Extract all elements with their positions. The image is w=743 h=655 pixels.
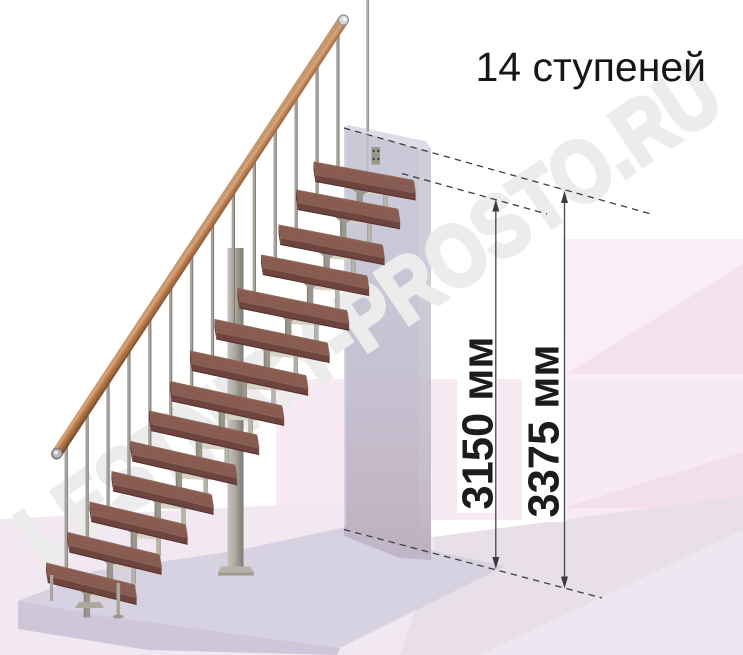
svg-text:3150 мм: 3150 мм <box>455 336 503 509</box>
svg-text:3375 мм: 3375 мм <box>521 344 569 517</box>
svg-text:14 ступеней: 14 ступеней <box>476 44 707 90</box>
